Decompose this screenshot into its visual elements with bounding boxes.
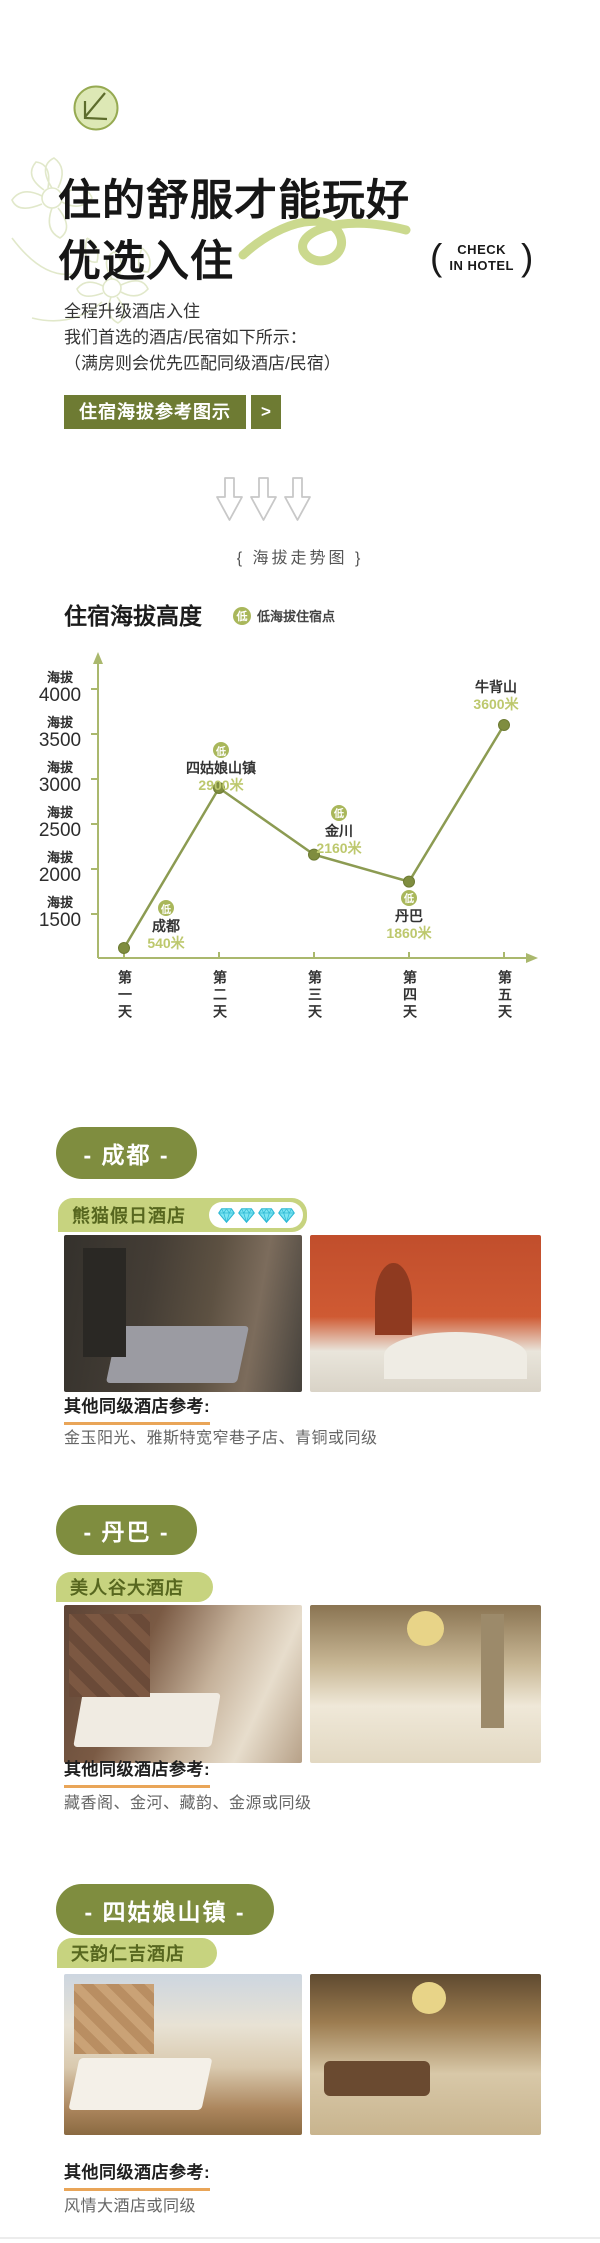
point-altitude-value: 3600米	[436, 696, 556, 713]
chart-title: 住宿海拔高度	[64, 597, 202, 631]
page-title-line1: 住的舒服才能玩好	[58, 166, 410, 228]
intro-paragraph: 全程升级酒店入住 我们首选的酒店/民宿如下所示： （满房则会优先匹配同级酒店/民…	[64, 299, 341, 377]
x-axis-day-label: 第二天	[210, 970, 230, 1021]
city-pill-siguniang: - 四姑娘山镇 -	[56, 1884, 274, 1935]
hotel-room-photo	[64, 1974, 302, 2135]
same-level-hotels-title: 其他同级酒店参考:	[64, 1755, 210, 1788]
hotel-name: 天韵仁吉酒店	[71, 1940, 185, 1966]
page-title-line2: 优选入住	[58, 227, 234, 289]
photo-detail	[74, 1693, 222, 1747]
low-altitude-badge-icon: 低	[331, 805, 347, 821]
hotel-name: 熊猫假日酒店	[72, 1202, 186, 1228]
photo-detail	[407, 1611, 444, 1646]
photo-detail	[375, 1263, 412, 1335]
same-level-hotels-list: 金玉阳光、雅斯特宽窄巷子店、青铜或同级	[64, 1424, 378, 1448]
x-axis-day-label: 第五天	[495, 970, 515, 1021]
hotel-room-photo	[64, 1235, 302, 1392]
photo-detail	[69, 1614, 150, 1696]
diamond-icon	[278, 1208, 295, 1223]
low-altitude-badge-icon: 低	[233, 607, 251, 625]
hotel-name: 美人谷大酒店	[70, 1574, 184, 1600]
photo-detail	[324, 2061, 430, 2096]
hotel-name-bar: 美人谷大酒店	[56, 1572, 213, 1602]
y-axis-tick-label: 海拔3000	[30, 761, 90, 796]
photo-detail	[68, 2058, 212, 2110]
intro-line: 全程升级酒店入住	[64, 299, 341, 325]
hotel-lobby-photo	[310, 1235, 541, 1392]
y-axis-tick-label: 海拔2500	[30, 806, 90, 841]
intro-line: （满房则会优先匹配同级酒店/民宿）	[64, 351, 341, 377]
hotel-name-bar: 熊猫假日酒店	[58, 1198, 307, 1232]
diamond-icon	[238, 1208, 255, 1223]
check-in-hotel-text: CHECK IN HOTEL	[449, 242, 514, 274]
left-paren: (	[430, 238, 442, 278]
intro-line: 我们首选的酒店/民宿如下所示：	[64, 325, 341, 351]
same-level-hotels-title: 其他同级酒店参考:	[64, 2158, 210, 2191]
chart-legend: 低 低海拔住宿点	[233, 606, 335, 625]
photo-detail	[384, 1332, 527, 1379]
point-place-name: 丹巴	[349, 908, 469, 925]
photo-detail	[106, 1326, 249, 1383]
x-axis-day-label: 第四天	[400, 970, 420, 1021]
same-level-hotels-list: 风情大酒店或同级	[64, 2192, 196, 2216]
low-altitude-badge-icon: 低	[401, 890, 417, 906]
x-axis-day-label: 第一天	[115, 970, 135, 1021]
point-altitude-value: 1860米	[349, 925, 469, 942]
city-pill-chengdu: - 成都 -	[56, 1127, 197, 1179]
point-place-name: 金川	[279, 823, 399, 840]
hotel-name-bar: 天韵仁吉酒店	[57, 1938, 217, 1968]
hotel-lobby-photo	[310, 1974, 541, 2135]
page: 住的舒服才能玩好 优选入住 ( CHECK IN HOTEL ) 全程升级酒店入…	[0, 0, 600, 2243]
chart-point-label: 低四姑娘山镇2900米	[161, 742, 281, 794]
chart-legend-label: 低海拔住宿点	[257, 606, 335, 625]
photo-detail	[412, 1982, 447, 2014]
point-altitude-value: 540米	[106, 935, 226, 952]
point-altitude-value: 2160米	[279, 840, 399, 857]
same-level-hotels-title: 其他同级酒店参考:	[64, 1392, 210, 1425]
chevron-right-icon[interactable]: >	[251, 395, 281, 429]
low-altitude-badge-icon: 低	[213, 742, 229, 758]
point-place-name: 牛背山	[436, 679, 556, 696]
hotel-room-photo	[64, 1605, 302, 1763]
altitude-reference-button[interactable]: 住宿海拔参考图示 >	[64, 395, 281, 429]
point-place-name: 成都	[106, 918, 226, 935]
altitude-trend-caption: { 海拔走势图 }	[0, 544, 600, 568]
brand-logo-leaf-icon	[72, 84, 120, 132]
chart-point-label: 低金川2160米	[279, 805, 399, 857]
photo-detail	[83, 1248, 126, 1358]
chart-point-label: 牛背山3600米	[436, 679, 556, 713]
check-in-line2: IN HOTEL	[449, 258, 514, 273]
same-level-hotels-list: 藏香阁、金河、藏韵、金源或同级	[64, 1789, 312, 1813]
y-axis-tick-label: 海拔2000	[30, 851, 90, 886]
chart-point-label: 低丹巴1860米	[349, 890, 469, 942]
chart-point-label: 低成都540米	[106, 900, 226, 952]
y-axis-tick-label: 海拔3500	[30, 716, 90, 751]
y-axis-tick-label: 海拔4000	[30, 671, 90, 706]
check-in-hotel-label: ( CHECK IN HOTEL )	[430, 238, 533, 278]
photo-detail	[74, 1984, 155, 2055]
city-pill-danba: - 丹巴 -	[56, 1505, 197, 1555]
x-axis-day-label: 第三天	[305, 970, 325, 1021]
point-place-name: 四姑娘山镇	[161, 760, 281, 777]
photo-detail	[481, 1614, 504, 1728]
y-axis-tick-label: 海拔1500	[30, 896, 90, 931]
diamond-rating	[209, 1202, 303, 1228]
diamond-icon	[218, 1208, 235, 1223]
hotel-lobby-photo	[310, 1605, 541, 1763]
right-paren: )	[521, 238, 533, 278]
check-in-line1: CHECK	[457, 242, 506, 257]
triple-down-arrow-icon	[215, 476, 319, 526]
point-altitude-value: 2900米	[161, 777, 281, 794]
diamond-icon	[258, 1208, 275, 1223]
low-altitude-badge-icon: 低	[158, 900, 174, 916]
bottom-divider	[0, 2237, 600, 2239]
altitude-reference-button-label[interactable]: 住宿海拔参考图示	[64, 395, 246, 429]
